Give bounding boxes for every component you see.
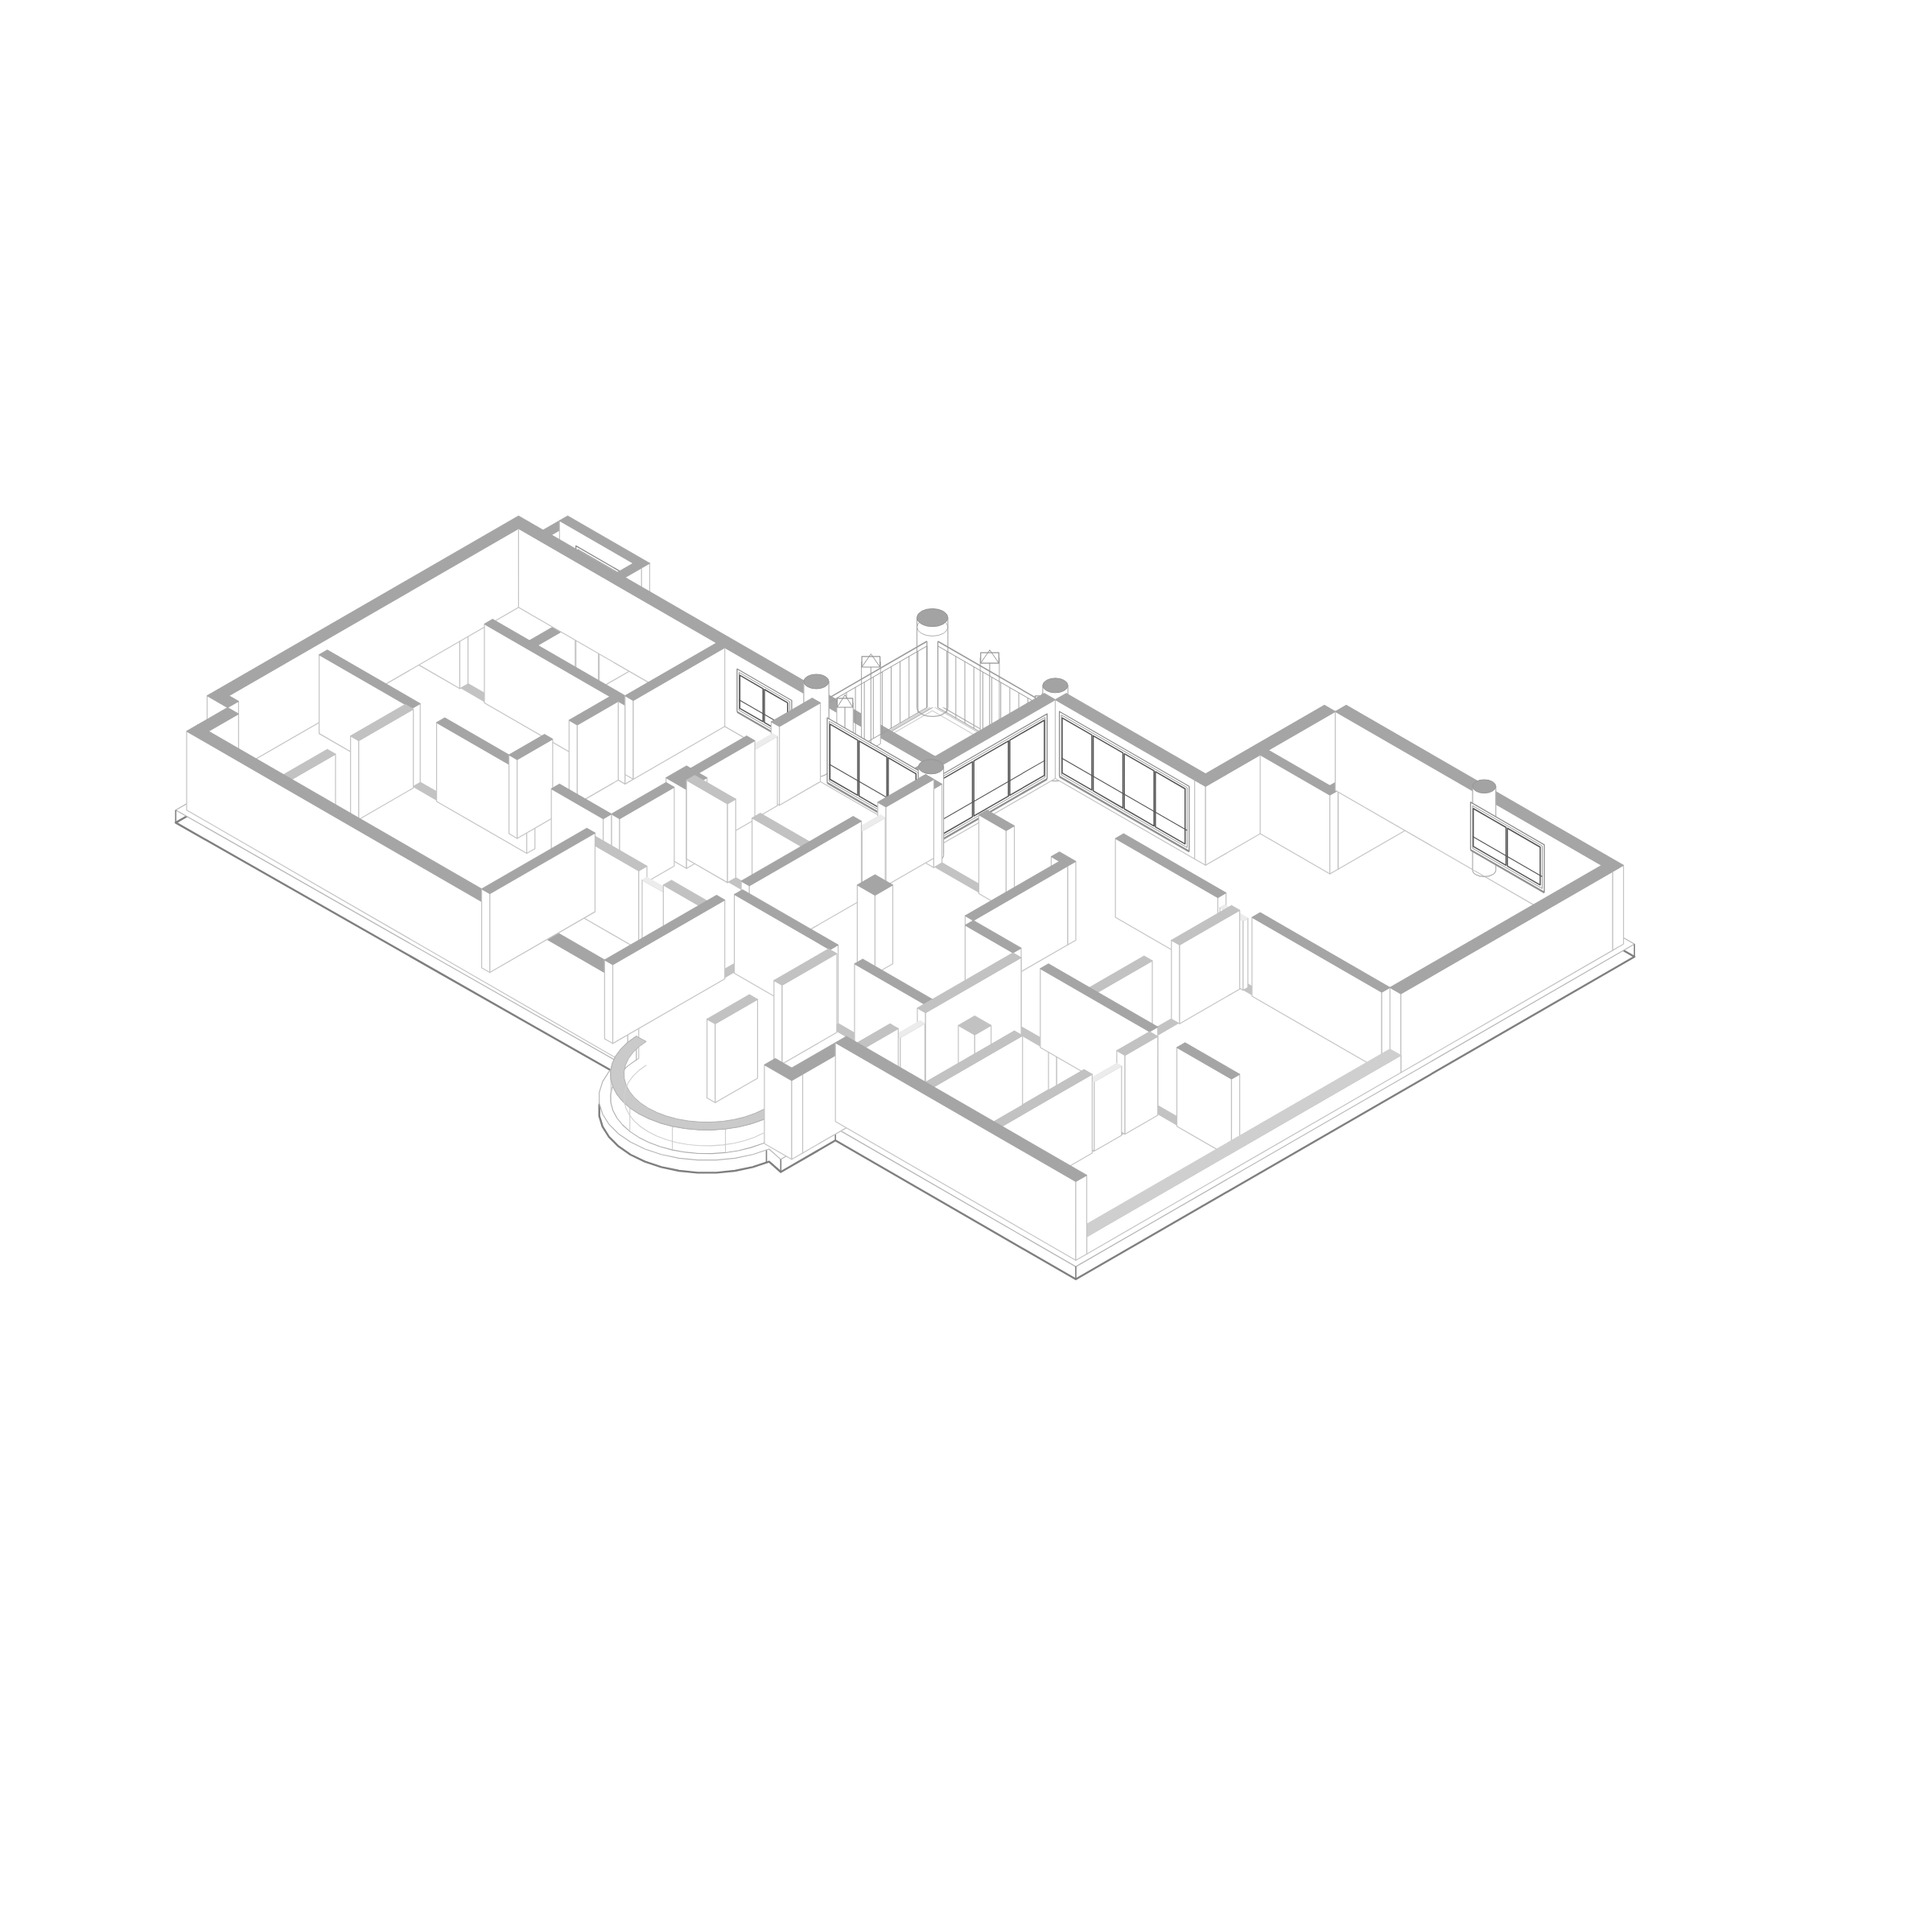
- isometric-floor-plan: [0, 0, 1932, 1932]
- solid: [1117, 1032, 1158, 1134]
- solid: [917, 608, 948, 716]
- solid: [764, 1058, 803, 1159]
- solid: [1090, 1063, 1122, 1151]
- drawing-canvas: [0, 0, 1932, 1932]
